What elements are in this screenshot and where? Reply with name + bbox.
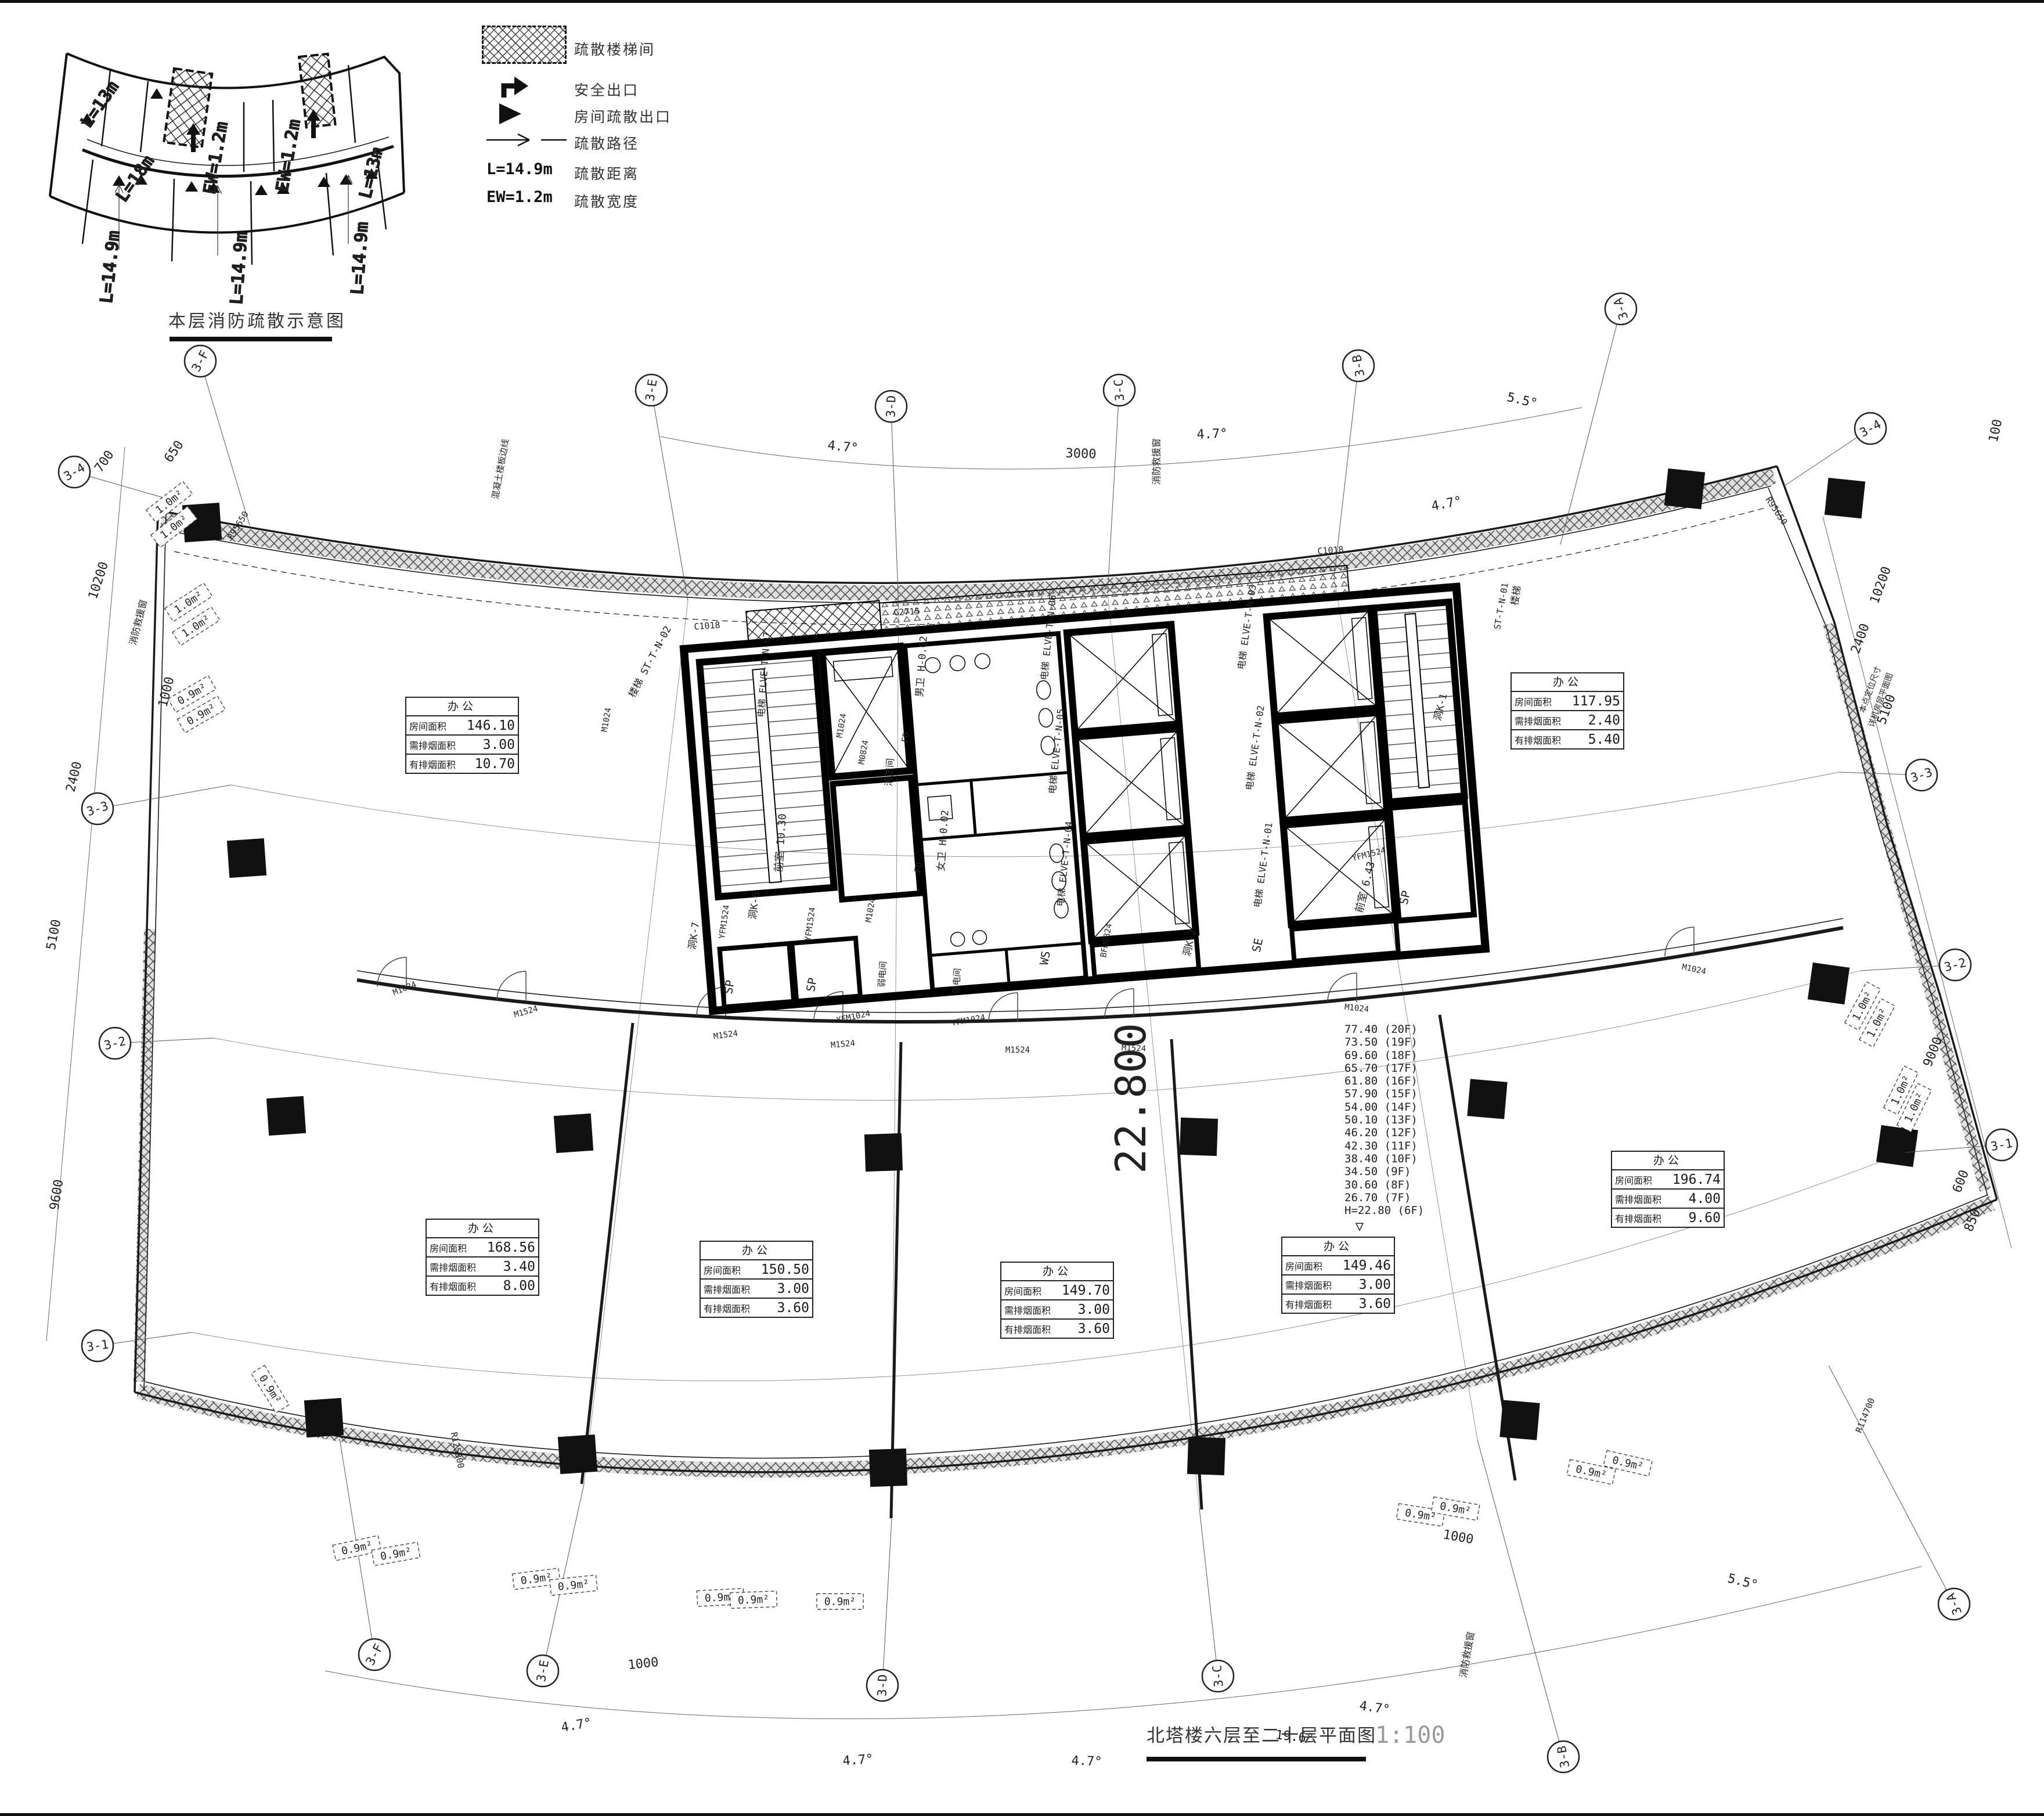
area-table-row: 有排烟面积3.60 <box>701 1298 812 1317</box>
dim-label: 3000 <box>1065 446 1097 462</box>
dim-label: 2400 <box>63 760 85 793</box>
plan-annotation: M1524 <box>713 1029 738 1042</box>
grid-bubble: 3-D <box>875 391 907 422</box>
area-table-row: 房间面积146.10 <box>406 715 518 734</box>
area-table-row: 有排烟面积3.60 <box>1001 1318 1113 1338</box>
inset-heading: 本层消防疏散示意图 <box>168 307 346 332</box>
floor-level-line: 77.40 (20F) <box>1344 1023 1424 1036</box>
area-table-title: 办公 <box>1612 1152 1724 1169</box>
plan-annotation: 混凝土楼板边线 <box>490 438 511 500</box>
plan-annotation: M1024 <box>391 980 417 998</box>
grid-leader <box>1199 1508 1218 1676</box>
se-room <box>1292 921 1398 961</box>
plan-annotation: M1524 <box>513 1004 539 1020</box>
dim-label: 600 <box>1950 1168 1972 1195</box>
dim-label: 5.5° <box>1505 390 1538 411</box>
plan-annotation: M1524 <box>1122 1043 1147 1053</box>
plan-annotation: 电梯 ELVE-T-N-02 <box>1243 705 1266 791</box>
floor-level-line: 73.50 (19F) <box>1344 1036 1424 1048</box>
dim-label: 4.7° <box>842 1752 874 1769</box>
dim-label: 4.7° <box>560 1716 593 1735</box>
plan-annotation: 前室 6.43 <box>1353 860 1378 914</box>
area-table: 办公房间面积149.46需排烟面积3.00有排烟面积3.60 <box>1281 1237 1395 1314</box>
floor-level-line: 34.50 (9F) <box>1344 1165 1424 1178</box>
plan-annotation: 消防救援窗 <box>1151 438 1162 485</box>
floor-level-line: 57.90 (15F) <box>1344 1087 1424 1100</box>
grid-bubble: 3-C <box>1104 374 1135 406</box>
inset-evacuation-diagram: L=13mL=18mEW=1.2mEW=1.2mL=14.9mL=14.9mL=… <box>50 53 404 305</box>
anteroom-west <box>832 777 920 899</box>
area-table-row: 房间面积196.74 <box>1612 1169 1724 1188</box>
inset-distance-label: L=14.9m <box>96 229 124 304</box>
legend-item-label: 安全出口 <box>574 79 639 100</box>
dim-label: 5.5° <box>1726 1571 1759 1592</box>
area-table-row: 需排烟面积4.00 <box>1612 1188 1724 1208</box>
plan-annotation: ▽ <box>1356 1218 1364 1234</box>
grid-bubble: 3-3 <box>1906 759 1937 791</box>
plan-annotation: 消防救援窗 <box>1458 1631 1477 1678</box>
area-table: 办公房间面积168.56需排烟面积3.40有排烟面积8.00 <box>426 1219 539 1296</box>
area-table-title: 办公 <box>406 698 518 715</box>
dim-label: 100 <box>1987 418 2006 444</box>
area-table-row: 房间面积150.50 <box>701 1259 812 1278</box>
service-core <box>682 554 1486 1011</box>
area-table-row: 房间面积149.46 <box>1282 1255 1394 1274</box>
plan-annotation: 电梯 ELVE-T-N-01 <box>1252 822 1274 909</box>
toilet-block <box>905 633 1086 990</box>
plan-annotation: M1524 <box>1005 1046 1030 1055</box>
area-table: 办公房间面积196.74需排烟面积4.00有排烟面积9.60 <box>1611 1151 1725 1228</box>
plan-annotation: 洞K-7 <box>687 921 702 950</box>
grid-bubble-label: 3-C <box>1210 1664 1225 1688</box>
area-table-row: 有排烟面积3.60 <box>1282 1293 1394 1313</box>
scale-label: 1:100 <box>1375 1722 1445 1749</box>
grid-bubble-label: 3-D <box>875 1674 889 1697</box>
area-table-row: 需排烟面积3.40 <box>427 1256 538 1275</box>
plan-annotation: SP <box>1396 889 1413 906</box>
dim-label: 10200 <box>86 560 111 601</box>
dim-label: 650 <box>161 438 186 466</box>
plan-annotation: C1018 <box>694 619 720 632</box>
main-plan-svg: L=13mL=18mEW=1.2mEW=1.2mL=14.9mL=14.9mL=… <box>0 0 2044 1816</box>
inset-stairwell-hatch <box>164 69 212 147</box>
page-title: 北塔楼六层至二十层平面图 <box>1147 1721 1376 1747</box>
inset-distance-label: L=14.9m <box>226 231 252 306</box>
window-area-tag: 0.9m² <box>817 1594 863 1609</box>
floor-level-line: 54.00 (14F) <box>1344 1101 1424 1114</box>
grid-bubble-label: 3-C <box>1112 379 1127 402</box>
floor-level-line: H=22.80 (6F) <box>1344 1204 1424 1217</box>
plan-annotation: M1024 <box>1681 963 1707 977</box>
dim-label: 4.7° <box>1430 494 1463 514</box>
plan-annotation: C1018 <box>1317 544 1344 556</box>
legend-item-label: 疏散宽度 <box>574 190 639 211</box>
plan-annotation: 女卫 H-0.02 <box>935 810 951 872</box>
room-exit-triangle-icon <box>497 102 524 125</box>
floor-level-line: 46.20 (12F) <box>1344 1126 1424 1139</box>
area-table-row: 有排烟面积10.70 <box>406 754 518 773</box>
floor-level-line: 65.70 (17F) <box>1344 1062 1424 1075</box>
grid-bubble: 3-F <box>359 1639 390 1670</box>
sp-shaft <box>720 943 794 1007</box>
plan-annotation: YFM1024 <box>951 1013 986 1028</box>
plan-annotation: M1524 <box>830 1039 855 1050</box>
inset-distance-label: EW=1.2m <box>272 118 305 194</box>
dim-label: 4.7° <box>1196 427 1228 442</box>
safety-exit-arrow-icon <box>497 71 532 103</box>
area-table-row: 房间面积149.70 <box>1001 1280 1113 1299</box>
grid-bubble: 3-D <box>867 1670 898 1701</box>
grid-leader <box>98 785 231 809</box>
floor-level-line: 42.30 (11F) <box>1344 1140 1424 1152</box>
plan-annotation: M1024 <box>864 898 877 923</box>
grid-leader <box>1829 1365 1954 1604</box>
plan-annotation: M1024 <box>600 707 613 733</box>
plan-annotation: 强电间 <box>950 968 962 995</box>
window-area-tag: 0.9m² <box>730 1591 777 1609</box>
window-area-tag: 0.9m² <box>251 1365 289 1413</box>
area-table-row: 需排烟面积3.00 <box>1282 1274 1394 1293</box>
plan-annotation: 楼梯 ST-T-N-02 <box>626 624 674 700</box>
legend-item-label: 疏散路径 <box>574 132 639 153</box>
window-area-label: 0.9m² <box>738 1594 770 1607</box>
plan-annotation: SP <box>803 977 820 993</box>
area-table-title: 办公 <box>1001 1263 1113 1280</box>
plan-annotation: R95650 <box>1763 495 1789 527</box>
legend-item-label: 疏散楼梯间 <box>574 38 655 59</box>
legend-item-label: 房间疏散出口 <box>574 106 672 127</box>
inset-heading-underline <box>170 337 332 341</box>
area-table-row: 有排烟面积9.60 <box>1612 1208 1724 1227</box>
stair-hatch-swatch-icon <box>482 26 567 64</box>
plan-annotation: 楼梯 <box>1509 585 1524 607</box>
grid-bubble: 3-F <box>185 345 216 377</box>
dim-label: 1000 <box>1442 1527 1475 1547</box>
area-table-row: 房间面积117.95 <box>1512 691 1623 710</box>
grid-bubble: 3-1 <box>1986 1129 2017 1161</box>
legend-item-label: 疏散距离 <box>574 163 639 183</box>
area-table: 办公房间面积149.70需排烟面积3.00有排烟面积3.60 <box>1000 1262 1114 1339</box>
plan-annotation: YFM1524 <box>803 907 817 942</box>
floor-level-list: 77.40 (20F)73.50 (19F)69.60 (18F)65.70 (… <box>1344 1023 1424 1217</box>
floor-level-line: 38.40 (10F) <box>1344 1152 1424 1165</box>
dim-label: 10200 <box>1868 565 1894 606</box>
grid-leader <box>891 406 899 610</box>
area-table: 办公房间面积150.50需排烟面积3.00有排烟面积3.60 <box>700 1241 813 1318</box>
area-table-title: 办公 <box>1512 673 1623 691</box>
plan-annotation: C2715 <box>893 606 920 618</box>
grid-bubble: 3-4 <box>1855 413 1886 444</box>
dim-label: 4.7° <box>827 438 859 456</box>
grid-bubble: 3-2 <box>99 1028 131 1059</box>
grid-bubble: 3-2 <box>1940 949 1971 981</box>
dim-label: 700 <box>92 448 117 475</box>
sp-shaft <box>792 938 860 1001</box>
dim-label: 9600 <box>48 1179 67 1211</box>
grid-bubble: 3-1 <box>82 1330 113 1361</box>
plan-annotation: FD <box>913 862 925 874</box>
grid-bubble: 3-A <box>1938 1588 1970 1620</box>
plan-annotation: 电梯 ELVE-T-N-05 <box>1047 708 1066 795</box>
drawing-sheet: L=13mL=18mEW=1.2mEW=1.2mL=14.9mL=14.9mL=… <box>0 0 2044 1816</box>
grid-bubble: 3-E <box>527 1655 558 1687</box>
area-table-title: 办公 <box>427 1220 538 1237</box>
grid-leader <box>1477 1440 1563 1757</box>
grid-bubble: 3-C <box>1202 1660 1234 1692</box>
toilet-fixtures <box>917 648 1070 948</box>
plan-annotation: YFM1524 <box>718 905 731 940</box>
floor-level-line: 69.60 (18F) <box>1344 1049 1424 1062</box>
dim-label: 1000 <box>627 1655 659 1673</box>
plan-annotation: FD <box>900 732 912 744</box>
dim-label: 5100 <box>44 918 64 952</box>
area-table: 办公房间面积146.10需排烟面积3.00有排烟面积10.70 <box>405 697 519 774</box>
plan-annotation: SP <box>721 979 737 995</box>
area-table-row: 有排烟面积8.00 <box>427 1275 538 1295</box>
area-table-row: 需排烟面积3.00 <box>1001 1299 1113 1318</box>
area-table: 办公房间面积117.95需排烟面积2.40有排烟面积5.40 <box>1511 672 1624 750</box>
inset-distance-label: L=14.9m <box>347 221 373 296</box>
grid-bubble: 3-B <box>1548 1741 1579 1772</box>
plan-annotation: 消防救援窗 <box>127 599 149 646</box>
dim-label: 4.7° <box>1071 1754 1102 1770</box>
area-table-row: 需排烟面积3.00 <box>406 734 518 754</box>
area-table-title: 办公 <box>701 1242 812 1259</box>
area-table-row: 有排烟面积5.40 <box>1512 729 1623 748</box>
floor-level-line: 61.80 (16F) <box>1344 1075 1424 1087</box>
floor-level-line: 26.70 (7F) <box>1344 1191 1424 1204</box>
grid-leader <box>651 390 688 601</box>
route-arrow-icon <box>485 132 572 147</box>
plan-annotation: M1024 <box>1344 1003 1369 1014</box>
floor-level-line: 50.10 (13F) <box>1344 1114 1424 1126</box>
inset-distance-label: L=13m <box>355 145 388 201</box>
inset-distance-label: L=13m <box>77 77 123 132</box>
dim-label: 4.7° <box>1358 1699 1391 1717</box>
inset-labels-layer: L=13mL=18mEW=1.2mEW=1.2mL=14.9mL=14.9mL=… <box>77 77 388 305</box>
grid-bubble-label: 3-D <box>884 395 898 418</box>
plan-annotation: R114700 <box>1854 1396 1877 1434</box>
plan-annotation: SE <box>1249 937 1266 954</box>
grid-leader <box>1108 390 1119 592</box>
grid-bubble: 3-E <box>636 374 667 406</box>
window-area-label: 0.9m² <box>824 1596 856 1608</box>
area-table-row: 需排烟面积2.40 <box>1512 710 1623 729</box>
title-block: 北塔楼六层至二十层平面图 1:100 <box>1147 1721 1376 1747</box>
width-symbol-text: EW=1.2m <box>486 188 553 206</box>
plan-annotation: M1024 <box>835 713 848 738</box>
plan-annotation: M0824 <box>857 740 870 765</box>
dim-label: 2400 <box>1848 622 1873 655</box>
distance-symbol-text: L=14.9m <box>486 160 553 178</box>
grid-bubble: 3-4 <box>59 456 90 488</box>
plan-annotation: ST-T-N-01 <box>1492 582 1511 630</box>
area-table-title: 办公 <box>1282 1238 1394 1255</box>
area-table-row: 房间面积168.56 <box>427 1237 538 1256</box>
grid-leader <box>882 1519 892 1685</box>
grid-bubble: 3-A <box>1605 293 1636 325</box>
grid-leader <box>200 361 250 525</box>
area-table-row: 需排烟面积3.00 <box>701 1278 812 1298</box>
plan-annotation: WS <box>1037 950 1053 966</box>
grid-bubble: 3-B <box>1343 350 1374 381</box>
grid-bubble: 3-3 <box>82 793 113 824</box>
floor-level-line: 30.60 (8F) <box>1344 1179 1424 1191</box>
title-underline <box>1147 1757 1366 1761</box>
plan-annotation: 清洁间 <box>883 758 896 786</box>
plan-annotation: 弱电间 <box>876 961 888 988</box>
plan-annotation: 电梯 ELVE-T-N-04 <box>1055 821 1075 907</box>
